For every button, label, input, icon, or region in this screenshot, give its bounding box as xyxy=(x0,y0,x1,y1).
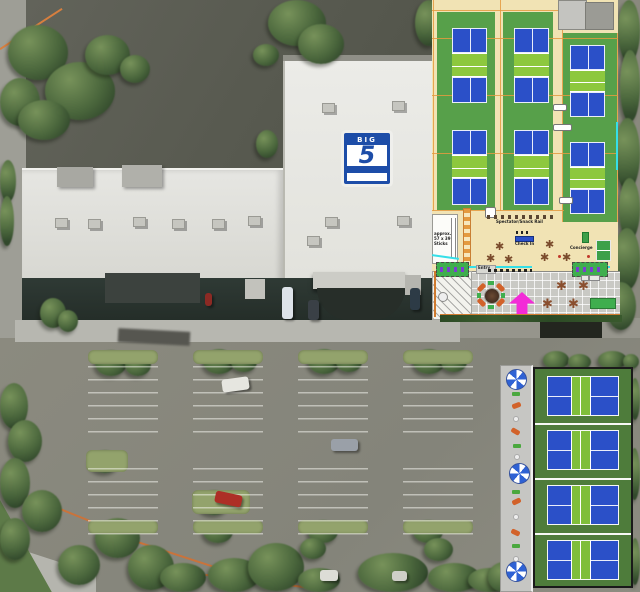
car xyxy=(320,570,338,581)
big5-logo-number: 5 xyxy=(347,145,387,166)
hvac-unit xyxy=(307,236,320,246)
tree xyxy=(298,24,344,64)
court-half-right xyxy=(590,431,618,469)
car xyxy=(205,293,212,306)
court-center-line xyxy=(591,560,618,561)
court-half-right xyxy=(590,377,618,415)
tree xyxy=(300,538,326,559)
hedge-strip xyxy=(440,315,622,322)
kitchen-zone xyxy=(572,541,590,579)
court-center-line xyxy=(548,450,571,451)
table-dot-icon xyxy=(513,514,519,520)
site-aerial-scene: BIG 5 SPORTING GOODS xyxy=(0,0,640,592)
court-half-left xyxy=(548,377,572,415)
hvac-unit xyxy=(55,218,68,228)
entrance-canopy xyxy=(245,279,265,299)
bench-icon xyxy=(512,392,520,396)
walkway-icons xyxy=(500,365,533,592)
car xyxy=(331,439,358,451)
net-line xyxy=(580,377,581,415)
court-separator xyxy=(535,533,631,535)
outdoor-pickleball-plan xyxy=(500,365,635,592)
table-dot-icon xyxy=(513,556,519,562)
parking-stripes xyxy=(88,468,158,540)
tree xyxy=(58,545,100,585)
front-sidewalk xyxy=(15,320,460,342)
tree xyxy=(58,310,78,332)
bench-icon xyxy=(511,402,521,410)
hvac-unit xyxy=(322,103,335,113)
parking-stripes xyxy=(298,366,368,438)
tree xyxy=(120,55,150,83)
hvac-unit xyxy=(397,216,410,226)
parking-stripes xyxy=(403,366,473,438)
roof-bumpout xyxy=(57,167,93,187)
hvac-unit xyxy=(325,217,338,227)
court-half-right xyxy=(590,541,618,579)
car xyxy=(308,300,319,320)
hvac-unit xyxy=(248,216,261,226)
parking-stripes xyxy=(403,468,473,540)
outdoor-court xyxy=(547,485,619,525)
roof-bumpout xyxy=(122,165,162,187)
outdoor-courts xyxy=(533,367,633,588)
court-center-line xyxy=(548,396,571,397)
court-separator xyxy=(535,478,631,480)
tree xyxy=(620,50,640,122)
hvac-unit xyxy=(133,217,146,227)
tree xyxy=(253,44,279,66)
parking-island xyxy=(403,350,473,364)
planter-bench xyxy=(590,298,616,309)
tree xyxy=(0,518,30,560)
bench-icon xyxy=(512,490,520,494)
tree xyxy=(160,563,206,592)
court-half-right xyxy=(590,486,618,524)
entrance-canopy xyxy=(105,273,200,303)
big5-logo: BIG 5 SPORTING GOODS xyxy=(344,133,390,184)
court-half-left xyxy=(548,541,572,579)
court-center-line xyxy=(591,450,618,451)
net-line xyxy=(580,486,581,524)
umbrella-pinwheel-icon xyxy=(509,463,530,484)
table-dot-icon xyxy=(513,416,519,422)
court-center-line xyxy=(591,505,618,506)
court-separator xyxy=(535,423,631,425)
car xyxy=(392,571,407,581)
parking-stripes xyxy=(88,366,158,438)
bench-icon xyxy=(513,444,521,448)
bench-icon xyxy=(510,528,520,536)
outdoor-court xyxy=(547,376,619,416)
net-line xyxy=(580,541,581,579)
indoor-pickleball-plan: Spectator/Snack Rail approx. 57 x 39 Sti… xyxy=(432,0,622,322)
round-table-icon: ✱ xyxy=(578,280,589,293)
net-line xyxy=(580,431,581,469)
tree xyxy=(256,130,278,158)
court-center-line xyxy=(548,560,571,561)
parking-stripes xyxy=(298,468,368,540)
round-table-icon: ✱ xyxy=(568,298,579,311)
parking-island xyxy=(193,350,263,364)
parking-island xyxy=(298,350,368,364)
tree xyxy=(22,490,62,532)
small-table xyxy=(589,275,600,281)
hvac-unit xyxy=(172,219,185,229)
tree xyxy=(0,196,14,246)
kitchen-zone xyxy=(572,431,590,469)
hvac-unit xyxy=(88,219,101,229)
patio-border xyxy=(434,271,436,317)
hvac-unit xyxy=(392,101,405,111)
tree xyxy=(248,543,304,591)
round-table-icon: ✱ xyxy=(542,298,553,311)
tree xyxy=(18,100,70,140)
tree xyxy=(424,538,453,561)
court-center-line xyxy=(591,396,618,397)
small-table xyxy=(581,275,589,281)
court-half-left xyxy=(548,486,572,524)
bench-icon xyxy=(510,427,520,436)
hvac-unit xyxy=(212,219,225,229)
court-center-line xyxy=(548,505,571,506)
car xyxy=(410,288,420,310)
tree xyxy=(8,420,42,462)
umbrella-pinwheel-icon xyxy=(506,369,527,390)
umbrella-pinwheel-icon xyxy=(506,561,527,582)
outdoor-court xyxy=(547,540,619,580)
entrance-canopy xyxy=(313,272,405,289)
bench-icon xyxy=(511,497,521,505)
car xyxy=(282,287,293,319)
court-half-left xyxy=(548,431,572,469)
kitchen-zone xyxy=(572,377,590,415)
parking-stripes xyxy=(193,366,263,438)
outdoor-court xyxy=(547,430,619,470)
patio-tables: ✱✱✱✱ xyxy=(432,0,622,322)
round-table-icon: ✱ xyxy=(556,280,567,293)
table-dot-icon xyxy=(514,454,520,460)
parking-island xyxy=(88,350,158,364)
bench-icon xyxy=(512,544,520,548)
kitchen-zone xyxy=(572,486,590,524)
